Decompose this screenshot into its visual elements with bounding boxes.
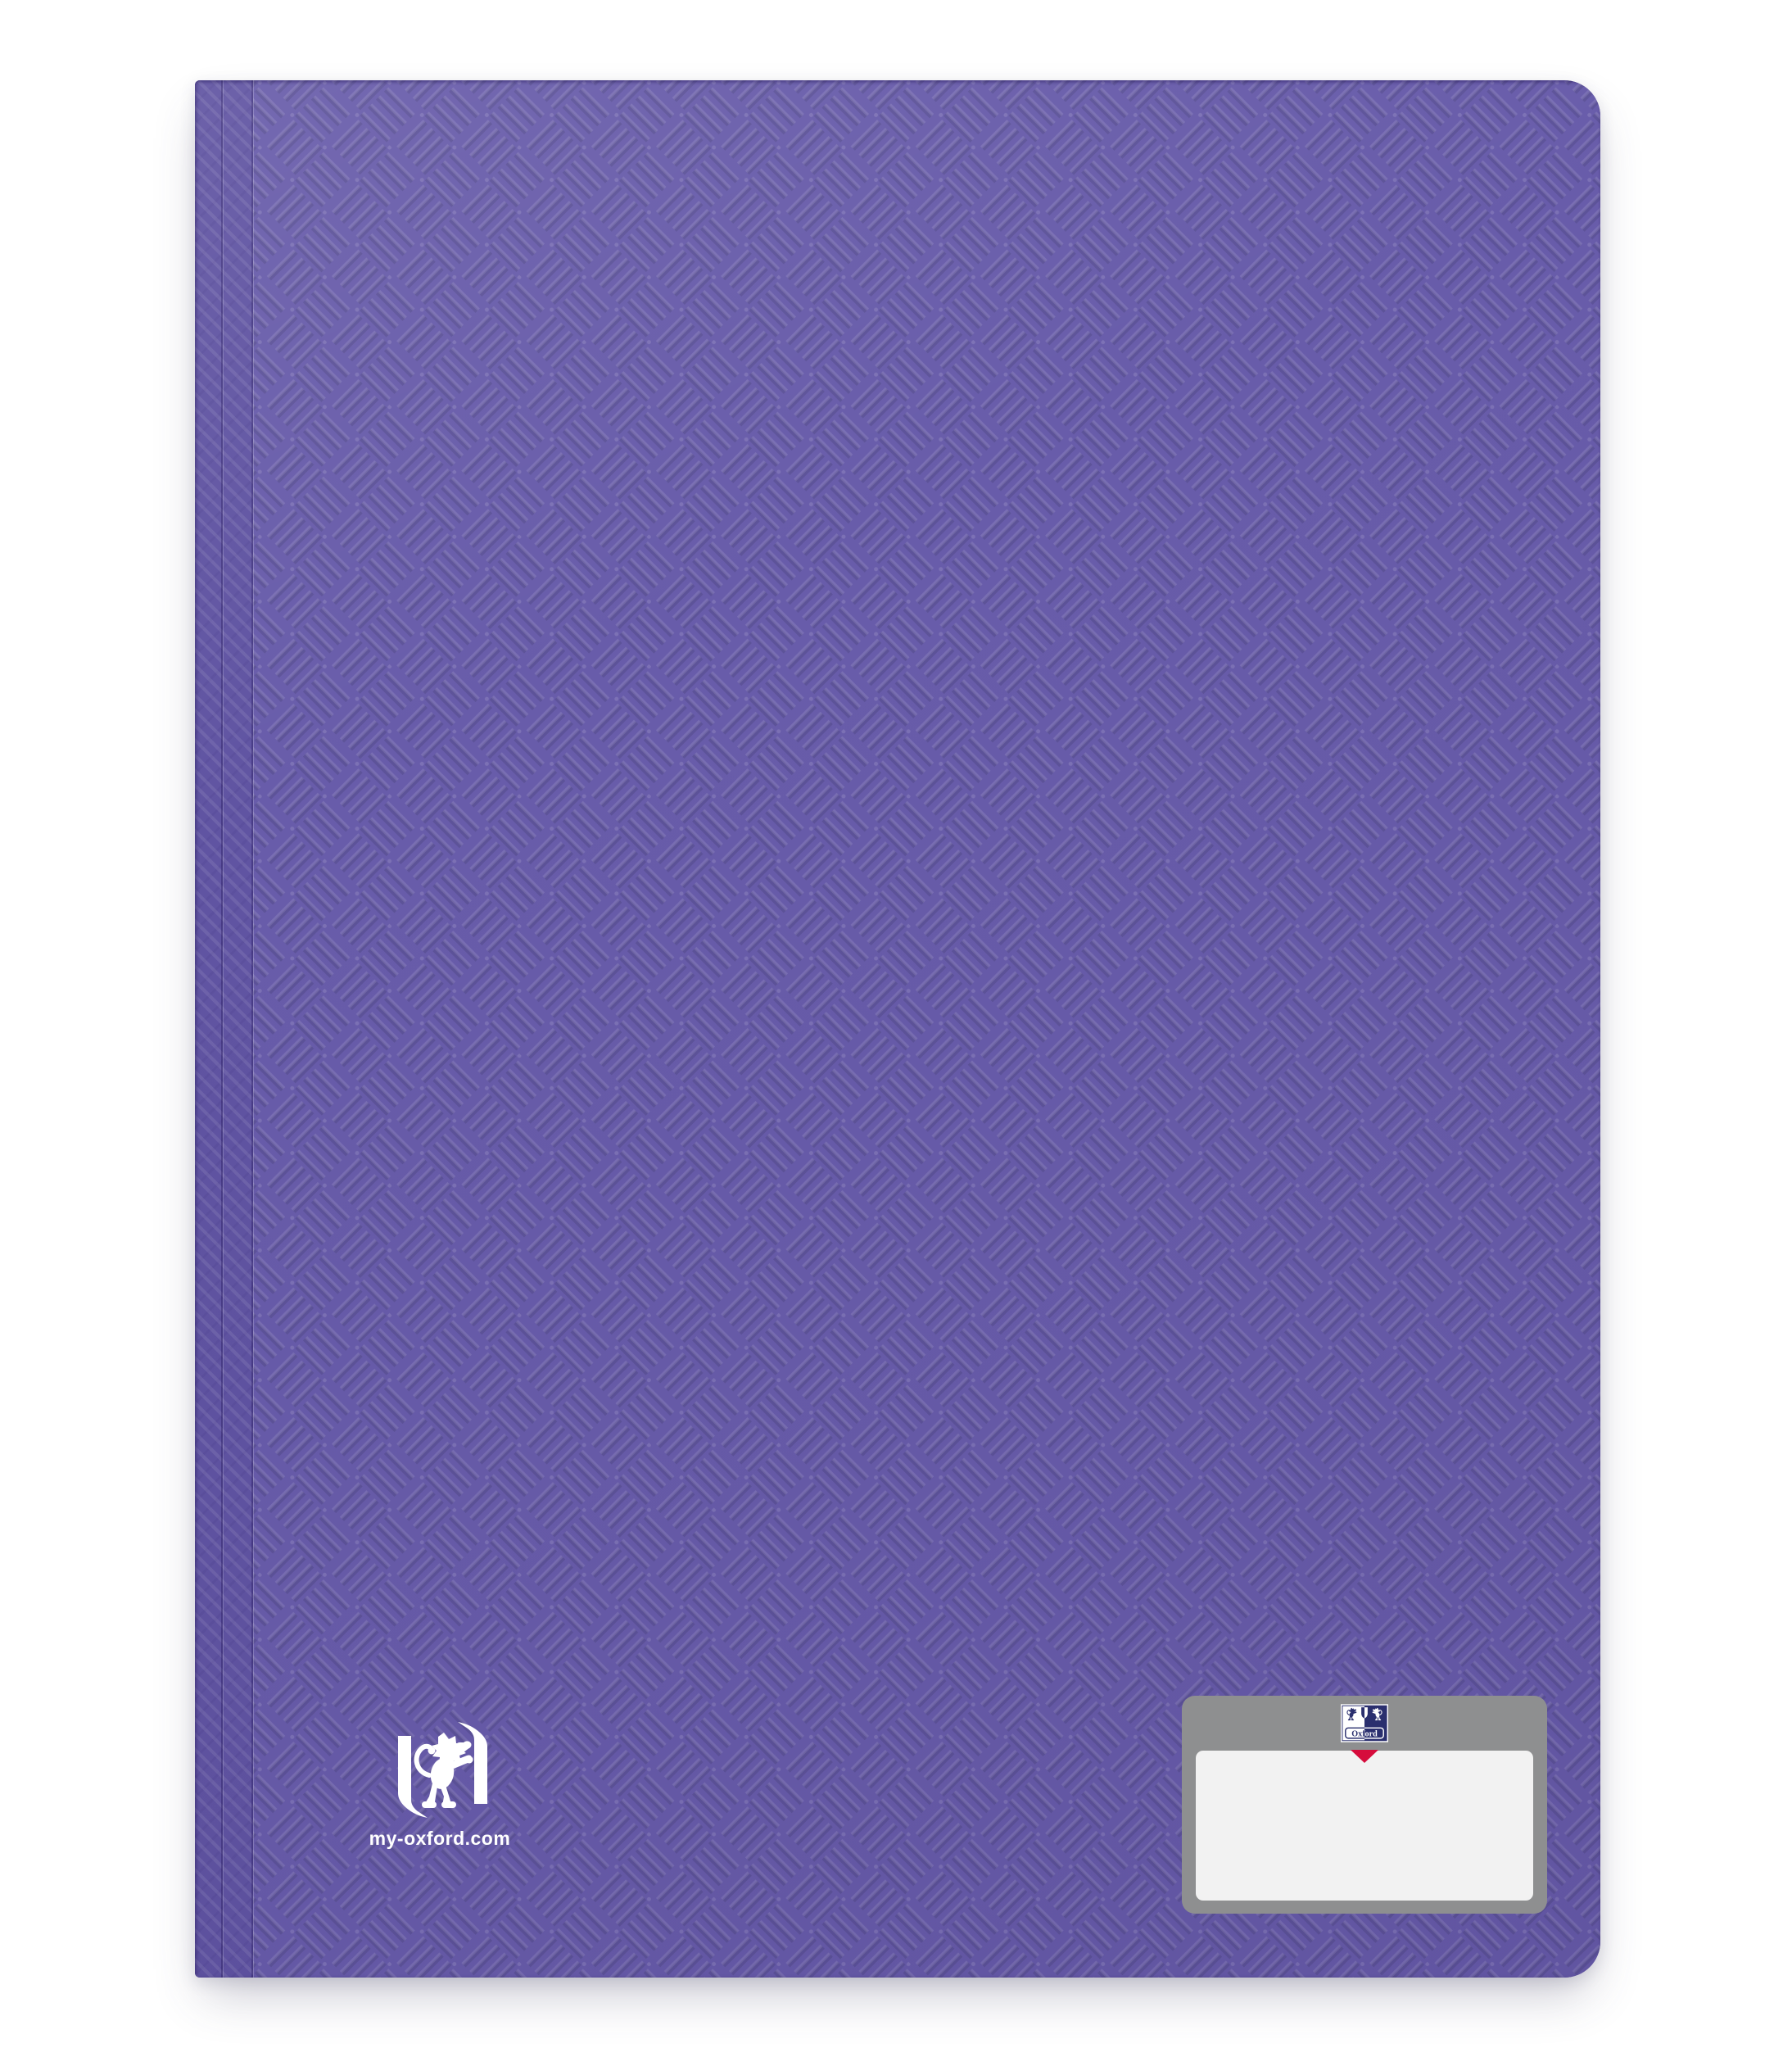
label-plate: Oxford Oxford — [1182, 1696, 1547, 1914]
brand-website-text: my-oxford.com — [358, 1828, 522, 1850]
label-name-area — [1196, 1751, 1533, 1901]
oxford-lion-logo-icon — [391, 1715, 494, 1825]
folder-cover: my-oxford.com Oxf — [195, 80, 1600, 1978]
product-photo: { "product": { "type": "display-book-cov… — [0, 0, 1792, 2048]
lighting-sheen — [195, 80, 1600, 1978]
red-arrow-down-icon — [1351, 1750, 1378, 1763]
oxford-crest-icon: Oxford Oxford — [1341, 1704, 1388, 1742]
